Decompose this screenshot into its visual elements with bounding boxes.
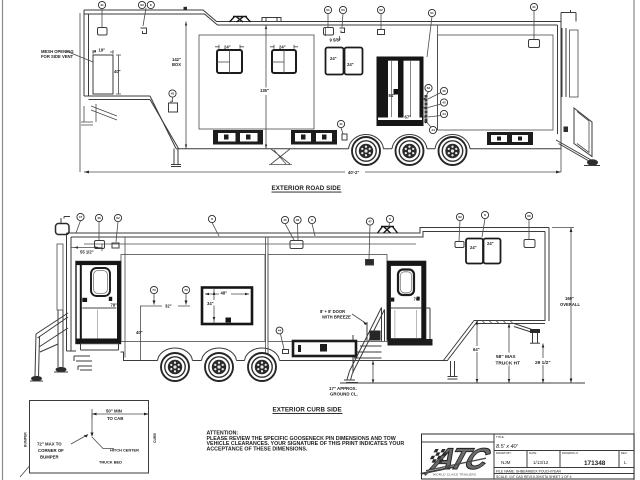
- svg-text:24": 24": [487, 241, 494, 246]
- svg-text:6: 6: [311, 218, 313, 222]
- svg-text:135": 135": [260, 88, 269, 93]
- svg-text:8: 8: [211, 217, 213, 221]
- svg-text:BOX: BOX: [172, 62, 181, 67]
- svg-text:63: 63: [341, 8, 345, 12]
- svg-text:63: 63: [140, 3, 144, 7]
- svg-text:FILE NAME: GHBEAMBOX POUCH/YEA: FILE NAME: GHBEAMBOX POUCH/YEAR: [496, 470, 562, 474]
- svg-text:70: 70: [184, 288, 188, 292]
- svg-text:78": 78": [414, 297, 421, 302]
- svg-text:67": 67": [405, 115, 412, 120]
- svg-text:44: 44: [278, 329, 282, 333]
- svg-text:24": 24": [330, 56, 337, 61]
- svg-text:66: 66: [527, 214, 531, 218]
- svg-text:48": 48": [221, 291, 228, 296]
- svg-text:45: 45: [283, 218, 287, 222]
- svg-text:NJM: NJM: [501, 460, 511, 465]
- svg-text:L: L: [624, 460, 627, 465]
- svg-text:FOR SIDE VENT: FOR SIDE VENT: [41, 54, 74, 59]
- svg-text:GROUND CL.: GROUND CL.: [330, 392, 358, 397]
- svg-text:DRAWING #: DRAWING #: [562, 451, 578, 455]
- svg-text:40": 40": [136, 330, 143, 335]
- svg-text:HITCH CENTER: HITCH CENTER: [110, 448, 139, 453]
- svg-text:55 1/2": 55 1/2": [80, 250, 94, 255]
- svg-text:WITH BREEZE: WITH BREEZE: [322, 315, 351, 320]
- svg-text:OVERALL: OVERALL: [560, 302, 580, 307]
- svg-text:24": 24": [224, 45, 231, 50]
- svg-text:TO CAB: TO CAB: [107, 416, 123, 421]
- svg-text:41: 41: [100, 3, 104, 7]
- svg-text:61: 61: [430, 11, 434, 15]
- svg-text:41: 41: [339, 122, 343, 126]
- svg-text:44: 44: [431, 128, 435, 132]
- svg-text:31: 31: [532, 5, 536, 9]
- svg-text:58" MAX: 58" MAX: [496, 354, 516, 360]
- svg-text:47: 47: [368, 220, 372, 224]
- svg-text:EXTERIOR ROAD SIDE: EXTERIOR ROAD SIDE: [272, 185, 342, 192]
- svg-text:19": 19": [99, 48, 106, 53]
- svg-text:29 1/2": 29 1/2": [535, 360, 551, 366]
- svg-text:62: 62: [116, 216, 120, 220]
- svg-text:8.5' x 40': 8.5' x 40': [496, 444, 519, 450]
- svg-text:62: 62: [379, 8, 383, 12]
- svg-text:84": 84": [389, 93, 396, 98]
- svg-text:62: 62: [458, 215, 462, 219]
- svg-text:45: 45: [171, 92, 175, 96]
- svg-text:TRUCK HT: TRUCK HT: [496, 361, 521, 367]
- svg-text:70: 70: [152, 288, 156, 292]
- svg-text:DRAWN BY:: DRAWN BY:: [496, 451, 512, 455]
- svg-text:REV:: REV:: [621, 451, 628, 455]
- svg-text:17" APPROX.: 17" APPROX.: [329, 386, 357, 391]
- svg-text:72" MAX TO: 72" MAX TO: [37, 442, 62, 447]
- svg-text:TITLE:: TITLE:: [496, 435, 505, 439]
- svg-text:64": 64": [473, 347, 480, 352]
- svg-text:BUMPER: BUMPER: [40, 455, 60, 460]
- svg-text:ACCEPTANCE OF THESE DIMENSIONS: ACCEPTANCE OF THESE DIMENSIONS.: [207, 446, 308, 452]
- svg-text:171348: 171348: [584, 460, 606, 467]
- svg-text:SCALE: 1/4" CAD REV10-30XSTA: SCALE: 1/4" CAD REV10-30XSTA SHEET 1 OF …: [496, 475, 572, 479]
- svg-text:8: 8: [150, 3, 152, 7]
- svg-text:44: 44: [442, 112, 446, 116]
- svg-text:WORLD CLASS TRAILERS: WORLD CLASS TRAILERS: [433, 473, 476, 477]
- svg-text:CURB: CURB: [153, 433, 157, 443]
- svg-text:DATE:: DATE:: [529, 451, 537, 455]
- svg-text:9 5/8": 9 5/8": [330, 38, 341, 43]
- svg-text:6: 6: [389, 217, 391, 221]
- svg-text:32": 32": [165, 304, 172, 309]
- svg-text:24": 24": [347, 62, 354, 67]
- svg-text:169": 169": [565, 296, 574, 301]
- svg-text:46: 46: [97, 216, 101, 220]
- svg-text:34": 34": [207, 301, 214, 306]
- svg-text:24": 24": [470, 245, 477, 250]
- svg-text:40'-2": 40'-2": [348, 170, 359, 175]
- svg-text:45: 45: [442, 89, 446, 93]
- svg-text:62: 62: [427, 86, 431, 90]
- svg-text:24": 24": [279, 45, 286, 50]
- svg-text:1/13/12: 1/13/12: [533, 460, 549, 465]
- svg-text:42: 42: [442, 101, 446, 105]
- svg-text:BUMPER: BUMPER: [24, 432, 28, 447]
- svg-text:EXTERIOR CURB SIDE: EXTERIOR CURB SIDE: [273, 407, 342, 414]
- svg-text:CORNER OF: CORNER OF: [38, 448, 64, 453]
- svg-text:78": 78": [111, 303, 118, 308]
- svg-text:8' + 8' DOOR: 8' + 8' DOOR: [320, 309, 345, 314]
- svg-text:40": 40": [114, 69, 121, 74]
- svg-text:TRUCK BED: TRUCK BED: [99, 460, 122, 465]
- svg-text:61: 61: [326, 8, 330, 12]
- svg-text:8: 8: [484, 213, 486, 217]
- svg-text:50" MIN: 50" MIN: [106, 409, 122, 414]
- svg-text:46: 46: [296, 218, 300, 222]
- svg-text:47: 47: [79, 215, 83, 219]
